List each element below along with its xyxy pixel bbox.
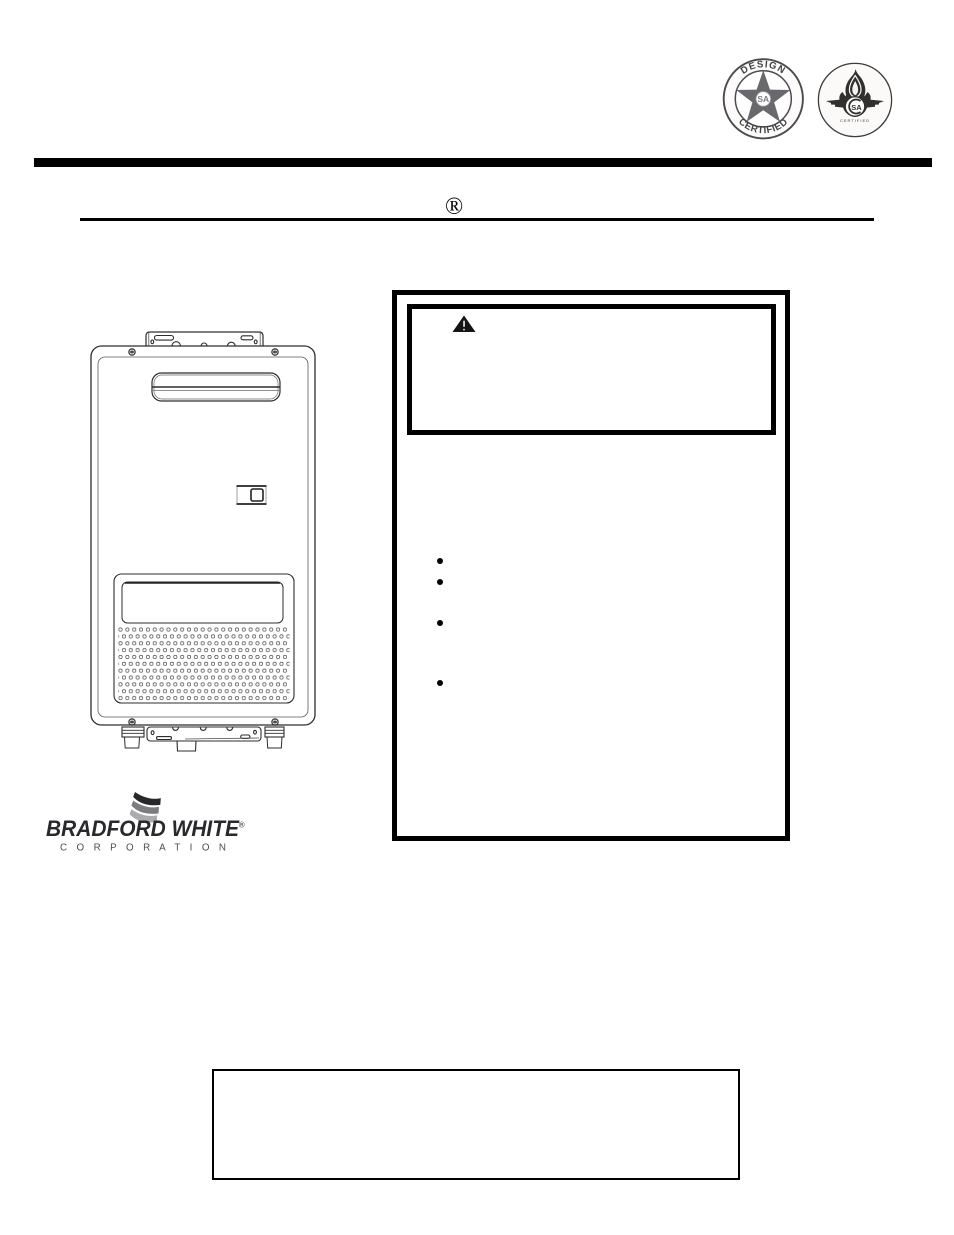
svg-text:CERTIFIED: CERTIFIED xyxy=(840,118,870,123)
svg-text:BRADFORD WHITE: BRADFORD WHITE xyxy=(46,816,240,841)
svg-text:SA: SA xyxy=(851,103,862,112)
svg-text:SA: SA xyxy=(757,94,769,104)
svg-text:®: ® xyxy=(239,821,245,830)
svg-text:C O R P O R A T I O N: C O R P O R A T I O N xyxy=(60,843,226,854)
